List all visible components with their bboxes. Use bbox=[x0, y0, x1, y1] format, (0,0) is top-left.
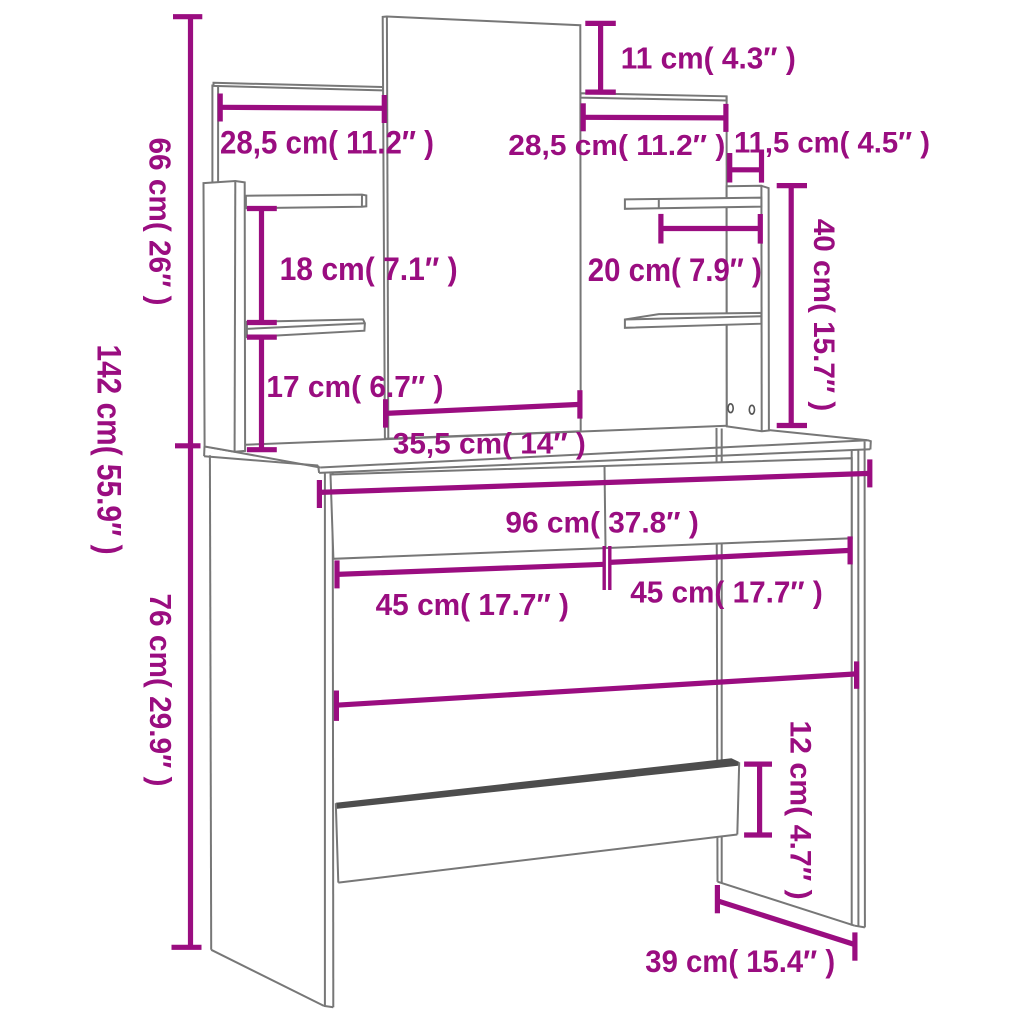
svg-text:28,5 cm( 11.2″ ): 28,5 cm( 11.2″ ) bbox=[220, 125, 434, 161]
svg-text:66 cm( 26″ ): 66 cm( 26″ ) bbox=[142, 138, 177, 306]
svg-text:39 cm( 15.4″ ): 39 cm( 15.4″ ) bbox=[645, 943, 835, 979]
svg-text:45 cm( 17.7″ ): 45 cm( 17.7″ ) bbox=[630, 575, 823, 610]
svg-text:96 cm( 37.8″ ): 96 cm( 37.8″ ) bbox=[505, 506, 698, 539]
svg-text:28,5 cm( 11.2″ ): 28,5 cm( 11.2″ ) bbox=[508, 130, 725, 162]
svg-text:20 cm( 7.9″ ): 20 cm( 7.9″ ) bbox=[588, 252, 762, 288]
svg-text:18 cm( 7.1″ ): 18 cm( 7.1″ ) bbox=[280, 251, 458, 287]
svg-text:45 cm( 17.7″ ): 45 cm( 17.7″ ) bbox=[376, 587, 569, 622]
svg-text:11,5 cm( 4.5″ ): 11,5 cm( 4.5″ ) bbox=[734, 127, 930, 160]
svg-text:12 cm( 4.7″ ): 12 cm( 4.7″ ) bbox=[784, 720, 817, 899]
svg-text:11 cm( 4.3″ ): 11 cm( 4.3″ ) bbox=[621, 40, 796, 75]
svg-text:76 cm( 29.9″ ): 76 cm( 29.9″ ) bbox=[143, 594, 178, 787]
svg-text:142 cm( 55.9″ ): 142 cm( 55.9″ ) bbox=[90, 345, 128, 555]
svg-text:35,5 cm( 14″ ): 35,5 cm( 14″ ) bbox=[393, 427, 586, 460]
svg-text:40 cm( 15.7″ ): 40 cm( 15.7″ ) bbox=[807, 219, 840, 412]
svg-text:17 cm( 6.7″ ): 17 cm( 6.7″ ) bbox=[266, 369, 443, 404]
